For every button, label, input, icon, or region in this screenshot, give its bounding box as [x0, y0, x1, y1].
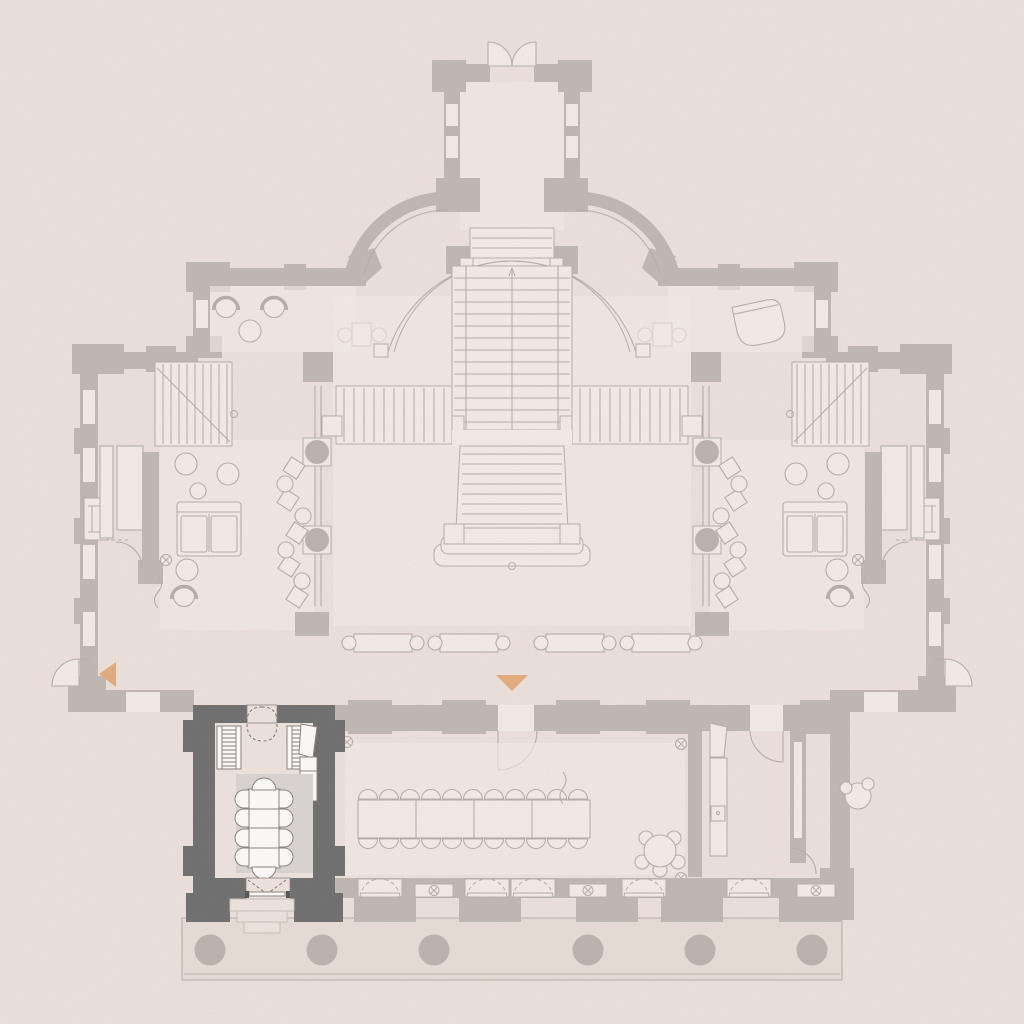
paper-texture	[0, 0, 1024, 1024]
floor-plan-svg	[0, 0, 1024, 1024]
floorplan-canvas	[0, 0, 1024, 1024]
